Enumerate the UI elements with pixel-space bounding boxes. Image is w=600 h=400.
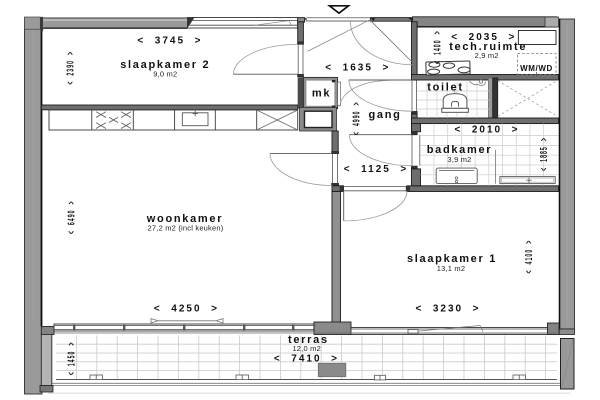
svg-text:< 6490 >: < 6490 > bbox=[66, 200, 77, 234]
svg-text:< 2035 >: < 2035 > bbox=[451, 32, 516, 43]
svg-text:< 1885 >: < 1885 > bbox=[538, 137, 549, 171]
svg-text:< 3745 >: < 3745 > bbox=[137, 35, 202, 46]
svg-text:< 3230 >: < 3230 > bbox=[415, 304, 480, 315]
svg-text:WM/WD: WM/WD bbox=[520, 64, 553, 73]
svg-text:2,9 m2: 2,9 m2 bbox=[475, 51, 499, 60]
svg-text:< 4990 >: < 4990 > bbox=[351, 101, 362, 135]
svg-text:9,0 m2: 9,0 m2 bbox=[153, 70, 177, 79]
svg-text:27,2 m2 (incl keuken): 27,2 m2 (incl keuken) bbox=[148, 224, 224, 233]
svg-text:< 1400 >: < 1400 > bbox=[432, 30, 443, 64]
svg-text:13,1 m2: 13,1 m2 bbox=[437, 264, 466, 273]
svg-text:3,9 m2: 3,9 m2 bbox=[447, 155, 471, 164]
svg-text:< 4250 >: < 4250 > bbox=[154, 304, 219, 315]
svg-text:12,0 m2: 12,0 m2 bbox=[292, 344, 321, 353]
svg-text:gang: gang bbox=[368, 109, 401, 121]
svg-text:< 2390 >: < 2390 > bbox=[65, 51, 76, 85]
svg-text:< 2010 >: < 2010 > bbox=[454, 125, 519, 136]
svg-text:< 4100 >: < 4100 > bbox=[523, 240, 534, 274]
svg-text:mk: mk bbox=[312, 88, 331, 100]
svg-text:< 1635 >: < 1635 > bbox=[325, 63, 390, 74]
svg-text:toilet: toilet bbox=[427, 82, 463, 94]
svg-text:< 7410 >: < 7410 > bbox=[274, 354, 339, 365]
svg-text:< 1450 >: < 1450 > bbox=[66, 342, 77, 376]
svg-text:< 1125 >: < 1125 > bbox=[344, 164, 409, 175]
